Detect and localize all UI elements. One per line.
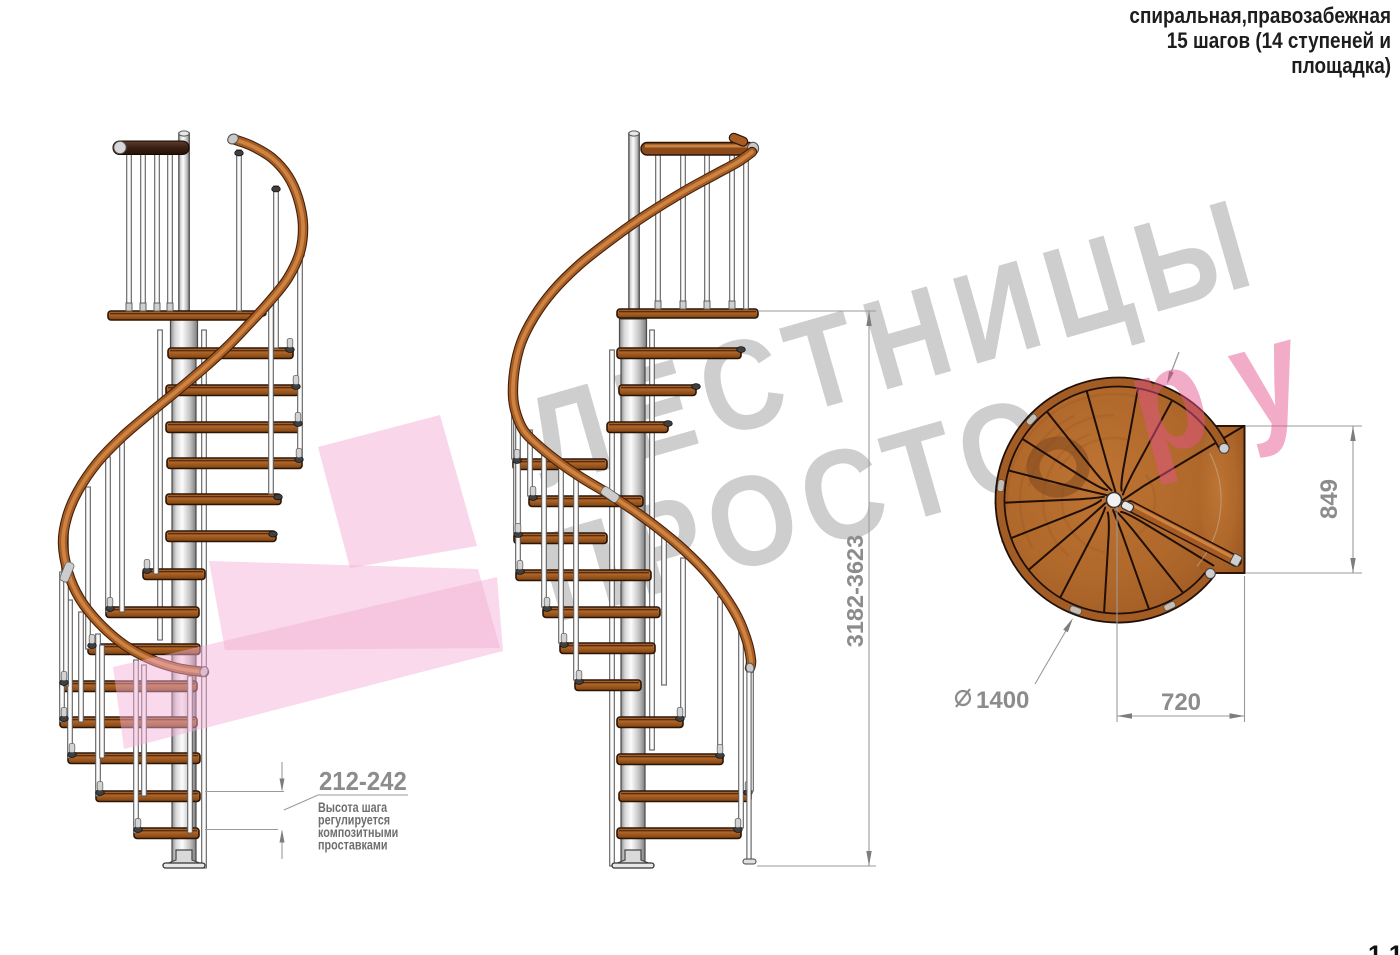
svg-text:площадка): площадка) [1291,54,1391,79]
svg-text:1400: 1400 [976,687,1029,714]
svg-text:3182-3623: 3182-3623 [842,535,868,647]
svg-text:проставками: проставками [318,837,388,852]
svg-text:спиральная,правозабежная: спиральная,правозабежная [1129,4,1391,29]
svg-text:1.15: 1.15 [1368,941,1400,955]
svg-text:720: 720 [1161,689,1201,716]
svg-text:849: 849 [1316,479,1343,519]
svg-text:15 шагов (14 ступеней и: 15 шагов (14 ступеней и [1167,29,1391,54]
svg-text:212-242: 212-242 [319,767,407,796]
